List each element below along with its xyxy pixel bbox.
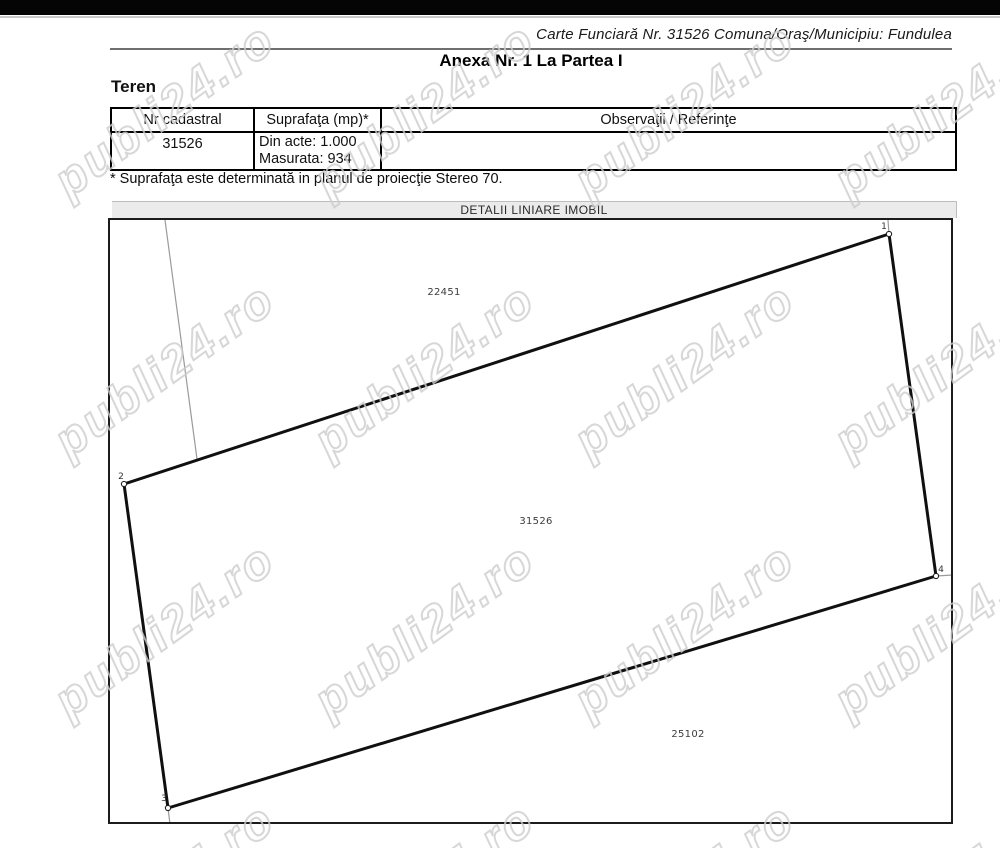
scan-top-bar-shadow [0,16,1000,18]
boundary-line [165,220,197,459]
table-header-row: Nr cadastral Suprafaţa (mp)* Observaţii … [111,108,956,132]
vertex-label: 3 [161,794,167,804]
teren-table: Nr cadastral Suprafaţa (mp)* Observaţii … [110,107,957,171]
col-header-nr-cadastral: Nr cadastral [111,108,254,132]
parcel-number-label: 31526 [519,516,552,527]
col-header-observatii: Observaţii / Referinţe [381,108,956,132]
vertex-label: 1 [881,222,887,232]
parcel-diagram-svg: 1234224513152625102 [110,220,951,822]
vertex-label: 4 [938,565,944,575]
header-divider [110,48,952,50]
section-title-teren: Teren [111,77,156,97]
cell-observatii [381,132,956,170]
vertex-label: 2 [118,472,124,482]
annex-title: Anexa Nr. 1 La Partea I [110,51,952,71]
col-header-suprafata: Suprafaţa (mp)* [254,108,381,132]
vertex-marker [121,481,126,486]
parcel-diagram: 1234224513152625102 [108,218,953,824]
cell-nr-cadastral: 31526 [111,132,254,170]
table-row: 31526 Din acte: 1.000 Masurata: 934 [111,132,956,170]
neighbor-parcel-label: 25102 [671,729,704,740]
suprafata-masurata: Masurata: 934 [259,151,376,168]
stereo70-footnote: * Suprafaţa este determinată in planul d… [110,171,503,187]
scan-top-black-bar [0,0,1000,15]
vertex-marker [886,231,891,236]
neighbor-parcel-label: 22451 [427,287,460,298]
document-page: Carte Funciară Nr. 31526 Comuna/Oraş/Mun… [0,0,1000,848]
registry-header: Carte Funciară Nr. 31526 Comuna/Oraş/Mun… [110,26,952,43]
suprafata-din-acte: Din acte: 1.000 [259,134,376,151]
vertex-marker [165,805,170,810]
cell-suprafata: Din acte: 1.000 Masurata: 934 [254,132,381,170]
diagram-title: DETALII LINIARE IMOBIL [112,201,957,218]
